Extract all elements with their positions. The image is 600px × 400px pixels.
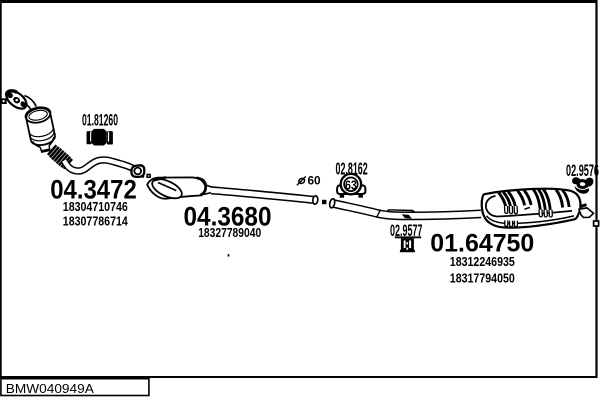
svg-text:60: 60 bbox=[308, 174, 322, 188]
svg-text:18304710746: 18304710746 bbox=[63, 199, 128, 214]
svg-text:02.9576: 02.9576 bbox=[566, 161, 599, 180]
svg-text:63: 63 bbox=[345, 178, 357, 192]
svg-text:18312246935: 18312246935 bbox=[450, 254, 515, 269]
svg-text:BMW040949A: BMW040949A bbox=[6, 381, 94, 396]
svg-text:18327789040: 18327789040 bbox=[198, 225, 261, 240]
svg-text:18307786714: 18307786714 bbox=[63, 214, 129, 229]
svg-text:18317794050: 18317794050 bbox=[450, 270, 515, 285]
svg-text:01.81260: 01.81260 bbox=[82, 111, 118, 130]
